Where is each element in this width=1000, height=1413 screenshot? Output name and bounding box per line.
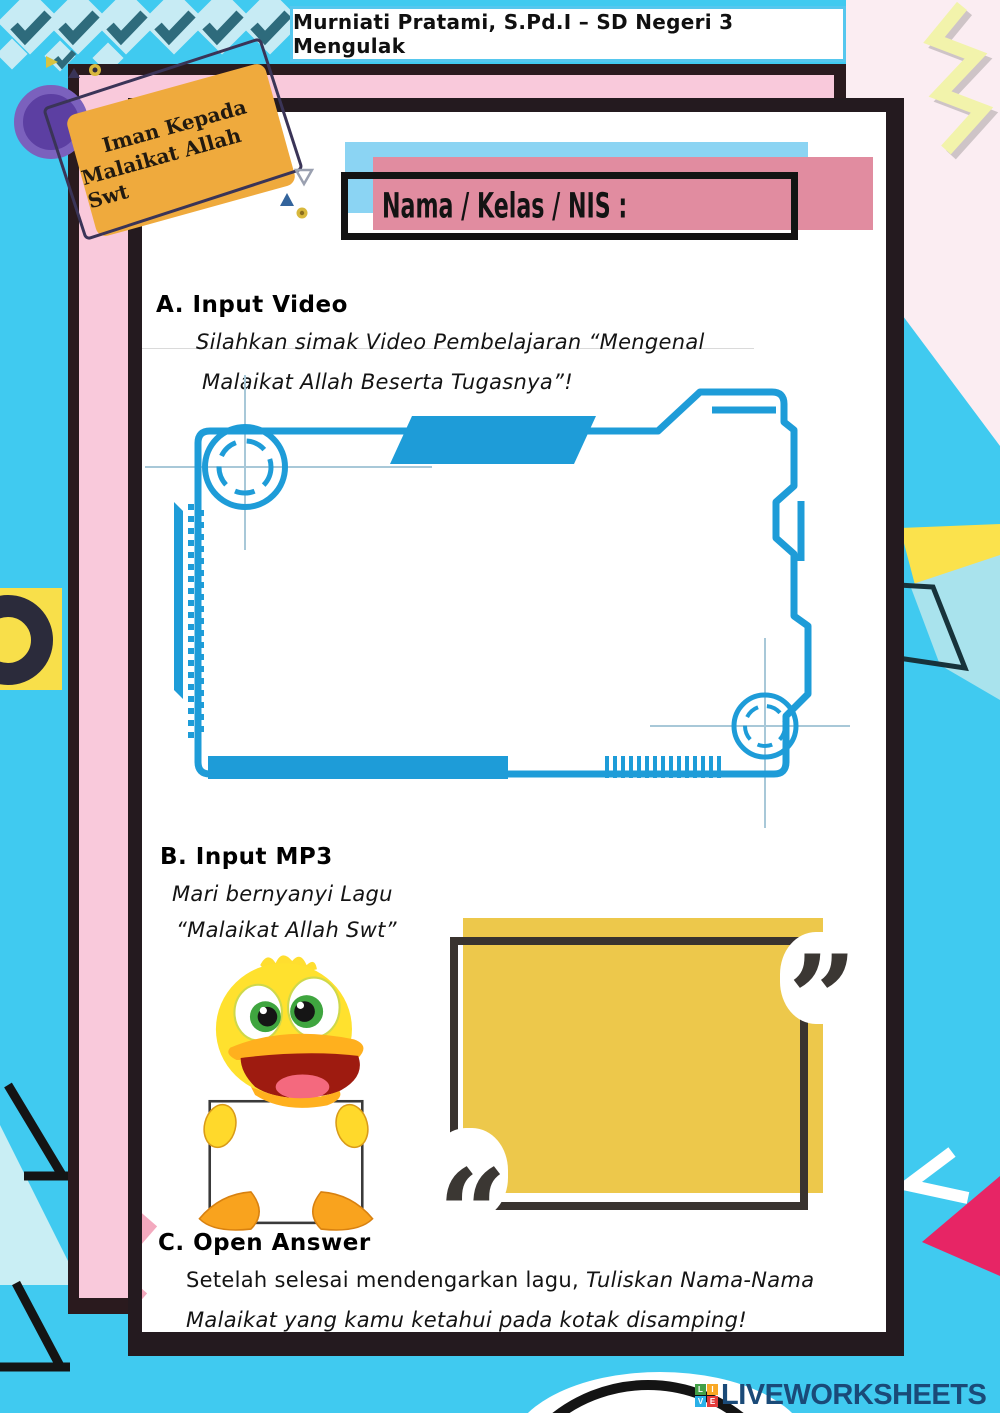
- yellow-rect-ring-decoration: [0, 588, 62, 690]
- liveworksheets-logo[interactable]: L I V E LIVEWORKSHEETS: [695, 1379, 986, 1412]
- name-input-field[interactable]: Nama / Kelas / NIS :: [341, 172, 798, 240]
- logo-letter: I: [707, 1384, 718, 1395]
- section-b-line2: “Malaikat Allah Swt”: [176, 918, 397, 942]
- logo-letter: V: [695, 1396, 706, 1407]
- open-quote-icon: “: [438, 1184, 507, 1244]
- section-c-line1: Setelah selesai mendengarkan lagu, Tulis…: [186, 1268, 814, 1292]
- section-a-heading: A. Input Video: [156, 292, 348, 318]
- section-c-heading: C. Open Answer: [158, 1230, 371, 1256]
- worksheet-page: Nama / Kelas / NIS : A. Input Video Sila…: [0, 0, 1000, 1413]
- pink-stripe-decoration: [128, 1275, 147, 1356]
- title-badge: Iman Kepada Malaikat Allah Swt: [18, 55, 318, 255]
- section-b-line1: Mari bernyanyi Lagu: [172, 882, 393, 906]
- worksheet-card: Nama / Kelas / NIS : A. Input Video Sila…: [128, 98, 904, 1356]
- close-quote-icon: ”: [788, 970, 857, 1030]
- liveworksheets-logo-icon: L I V E: [695, 1384, 718, 1407]
- badge-outline-decoration: [42, 37, 304, 241]
- logo-letter: E: [707, 1396, 718, 1407]
- section-b-heading: B. Input MP3: [160, 844, 333, 870]
- logo-letter: L: [695, 1384, 706, 1395]
- teacher-name-banner: Murniati Pratami, S.Pd.I – SD Negeri 3 M…: [290, 6, 846, 62]
- duck-mascot-graphic: [152, 948, 420, 1238]
- name-field-label: Nama / Kelas / NIS :: [382, 186, 627, 226]
- section-a-line1: Silahkan simak Video Pembelajaran “Menge…: [196, 330, 705, 354]
- section-c-line2: Malaikat yang kamu ketahui pada kotak di…: [186, 1308, 747, 1332]
- brand-name-text: LIVEWORKSHEETS: [721, 1379, 986, 1412]
- teacher-name-text: Murniati Pratami, S.Pd.I – SD Negeri 3 M…: [293, 10, 843, 58]
- video-input-area[interactable]: [172, 402, 792, 742]
